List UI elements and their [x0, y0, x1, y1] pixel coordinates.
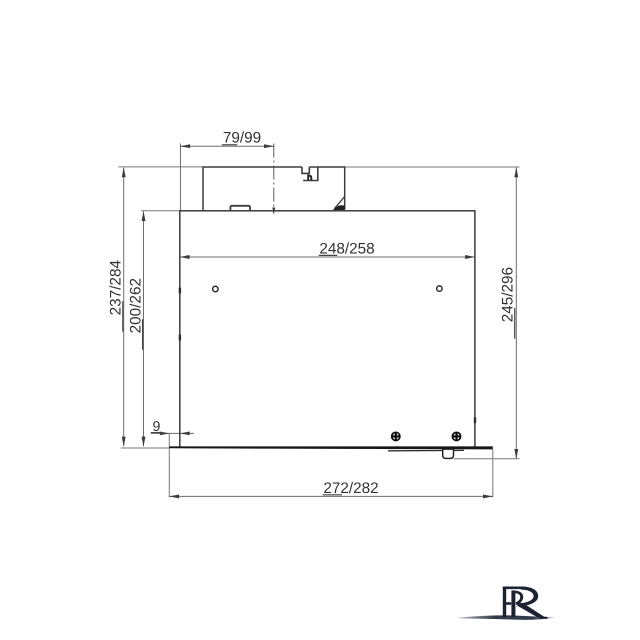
svg-text:245/296: 245/296 — [499, 267, 516, 322]
svg-text:237/284: 237/284 — [108, 260, 125, 316]
svg-text:200/262: 200/262 — [127, 278, 144, 333]
svg-text:79/99: 79/99 — [223, 130, 261, 147]
